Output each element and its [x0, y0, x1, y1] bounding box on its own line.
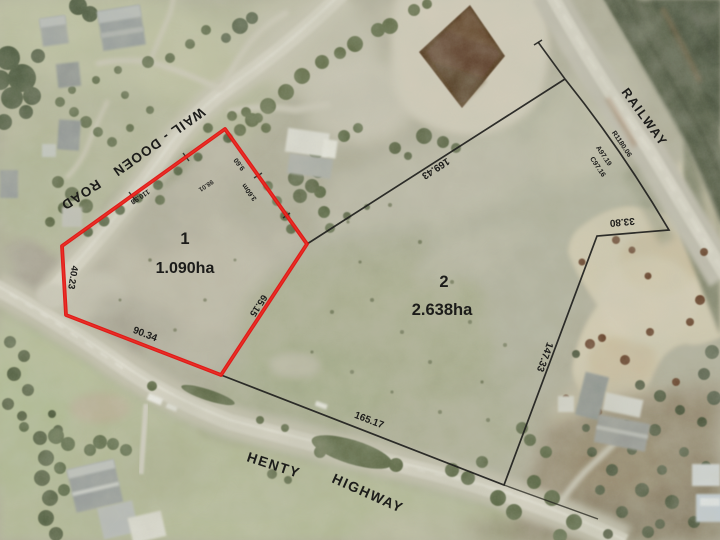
svg-text:2.638ha: 2.638ha [412, 301, 473, 319]
svg-text:2: 2 [439, 273, 448, 291]
svg-text:1: 1 [180, 230, 189, 248]
svg-text:33.80: 33.80 [609, 215, 635, 228]
svg-text:1.090ha: 1.090ha [156, 260, 215, 277]
